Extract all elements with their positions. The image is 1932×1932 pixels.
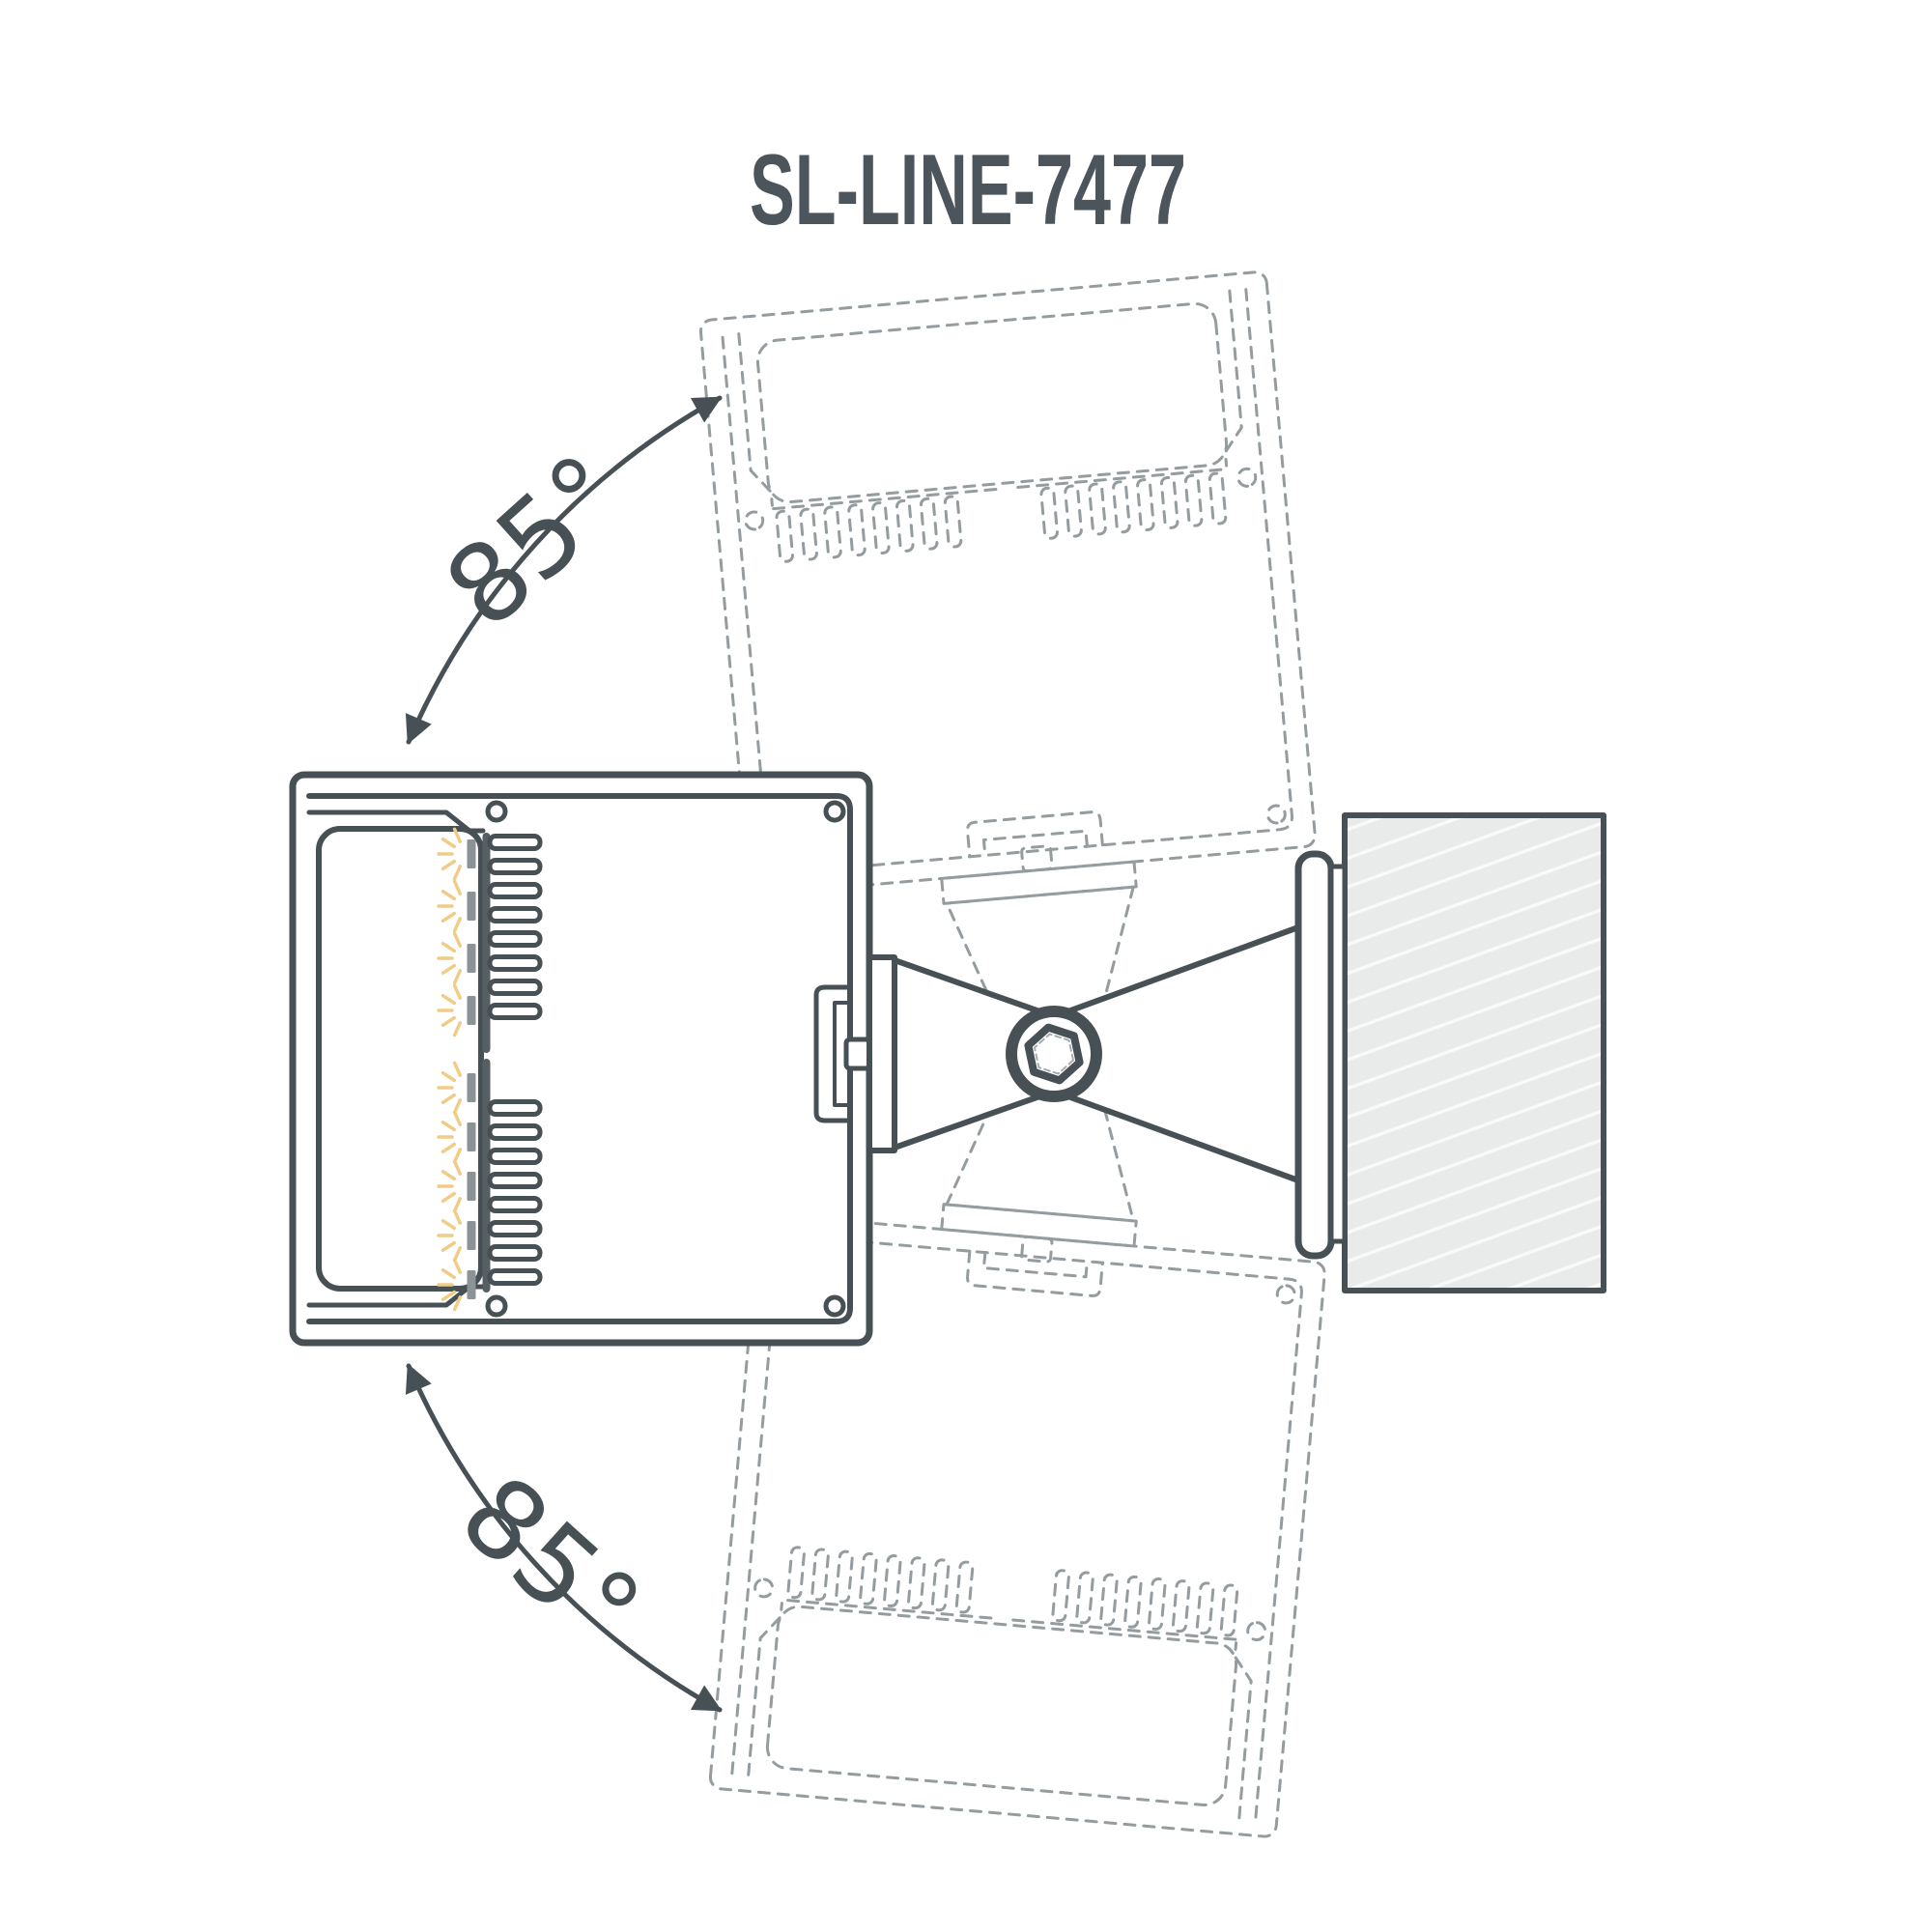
bracket-wall-plate	[1298, 854, 1331, 1256]
wall-block	[1345, 815, 1604, 1291]
wall-mount-assembly	[1065, 815, 1604, 1291]
angle-label-bottom: 85°	[437, 1452, 664, 1673]
pivot-joint	[1011, 1011, 1096, 1096]
bracket-backing-plate	[1331, 867, 1345, 1241]
angle-label-top: 85°	[422, 431, 649, 652]
diagram-canvas: 85° 85° SL-LINE-7477	[0, 0, 1932, 1932]
page-title: SL-LINE-7477	[750, 134, 1186, 246]
luminaire-tilt-diagram: 85° 85° SL-LINE-7477	[0, 0, 1932, 1932]
